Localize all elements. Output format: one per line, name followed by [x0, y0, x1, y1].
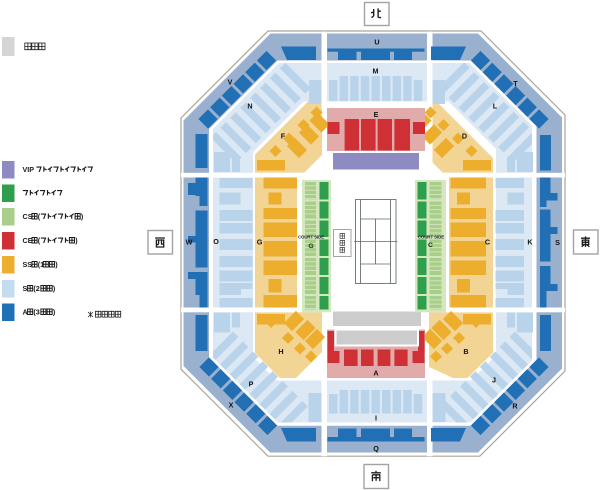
svg-text:I: I [375, 414, 377, 423]
svg-text:M: M [373, 67, 379, 76]
svg-text:X: X [229, 401, 234, 410]
svg-text:E: E [374, 110, 379, 119]
svg-text:A: A [23, 307, 28, 316]
svg-text:COURT SIDE: COURT SIDE [418, 235, 444, 240]
svg-text:A: A [373, 369, 378, 378]
svg-text:SS: SS [23, 260, 33, 269]
svg-text:C: C [428, 242, 433, 249]
svg-text:(2: (2 [33, 284, 39, 293]
svg-text:CS: CS [23, 212, 33, 221]
svg-text:J: J [492, 376, 496, 385]
svg-text:O: O [213, 237, 219, 246]
svg-text:U: U [374, 38, 379, 47]
svg-text:S: S [555, 238, 560, 247]
svg-text:D: D [462, 132, 467, 141]
svg-text:CE: CE [23, 236, 33, 245]
svg-text:P: P [249, 380, 254, 389]
svg-text:N: N [247, 102, 252, 111]
svg-text:COURT SIDE: COURT SIDE [298, 235, 324, 240]
svg-text:R: R [512, 402, 518, 411]
svg-text:K: K [527, 238, 533, 247]
svg-text:T: T [513, 79, 518, 88]
svg-text:G: G [257, 238, 263, 247]
svg-text:C: C [485, 238, 490, 247]
svg-text:Q: Q [373, 444, 379, 453]
svg-text:V: V [228, 78, 233, 87]
svg-text:L: L [493, 102, 498, 111]
svg-text:VIP: VIP [23, 165, 35, 174]
svg-text:W: W [186, 238, 193, 247]
svg-text:H: H [278, 347, 283, 356]
svg-text:S: S [23, 284, 28, 293]
svg-text:B: B [463, 347, 468, 356]
svg-text:F: F [281, 132, 286, 141]
svg-text:G: G [308, 243, 313, 250]
svg-text:(3: (3 [33, 307, 39, 316]
